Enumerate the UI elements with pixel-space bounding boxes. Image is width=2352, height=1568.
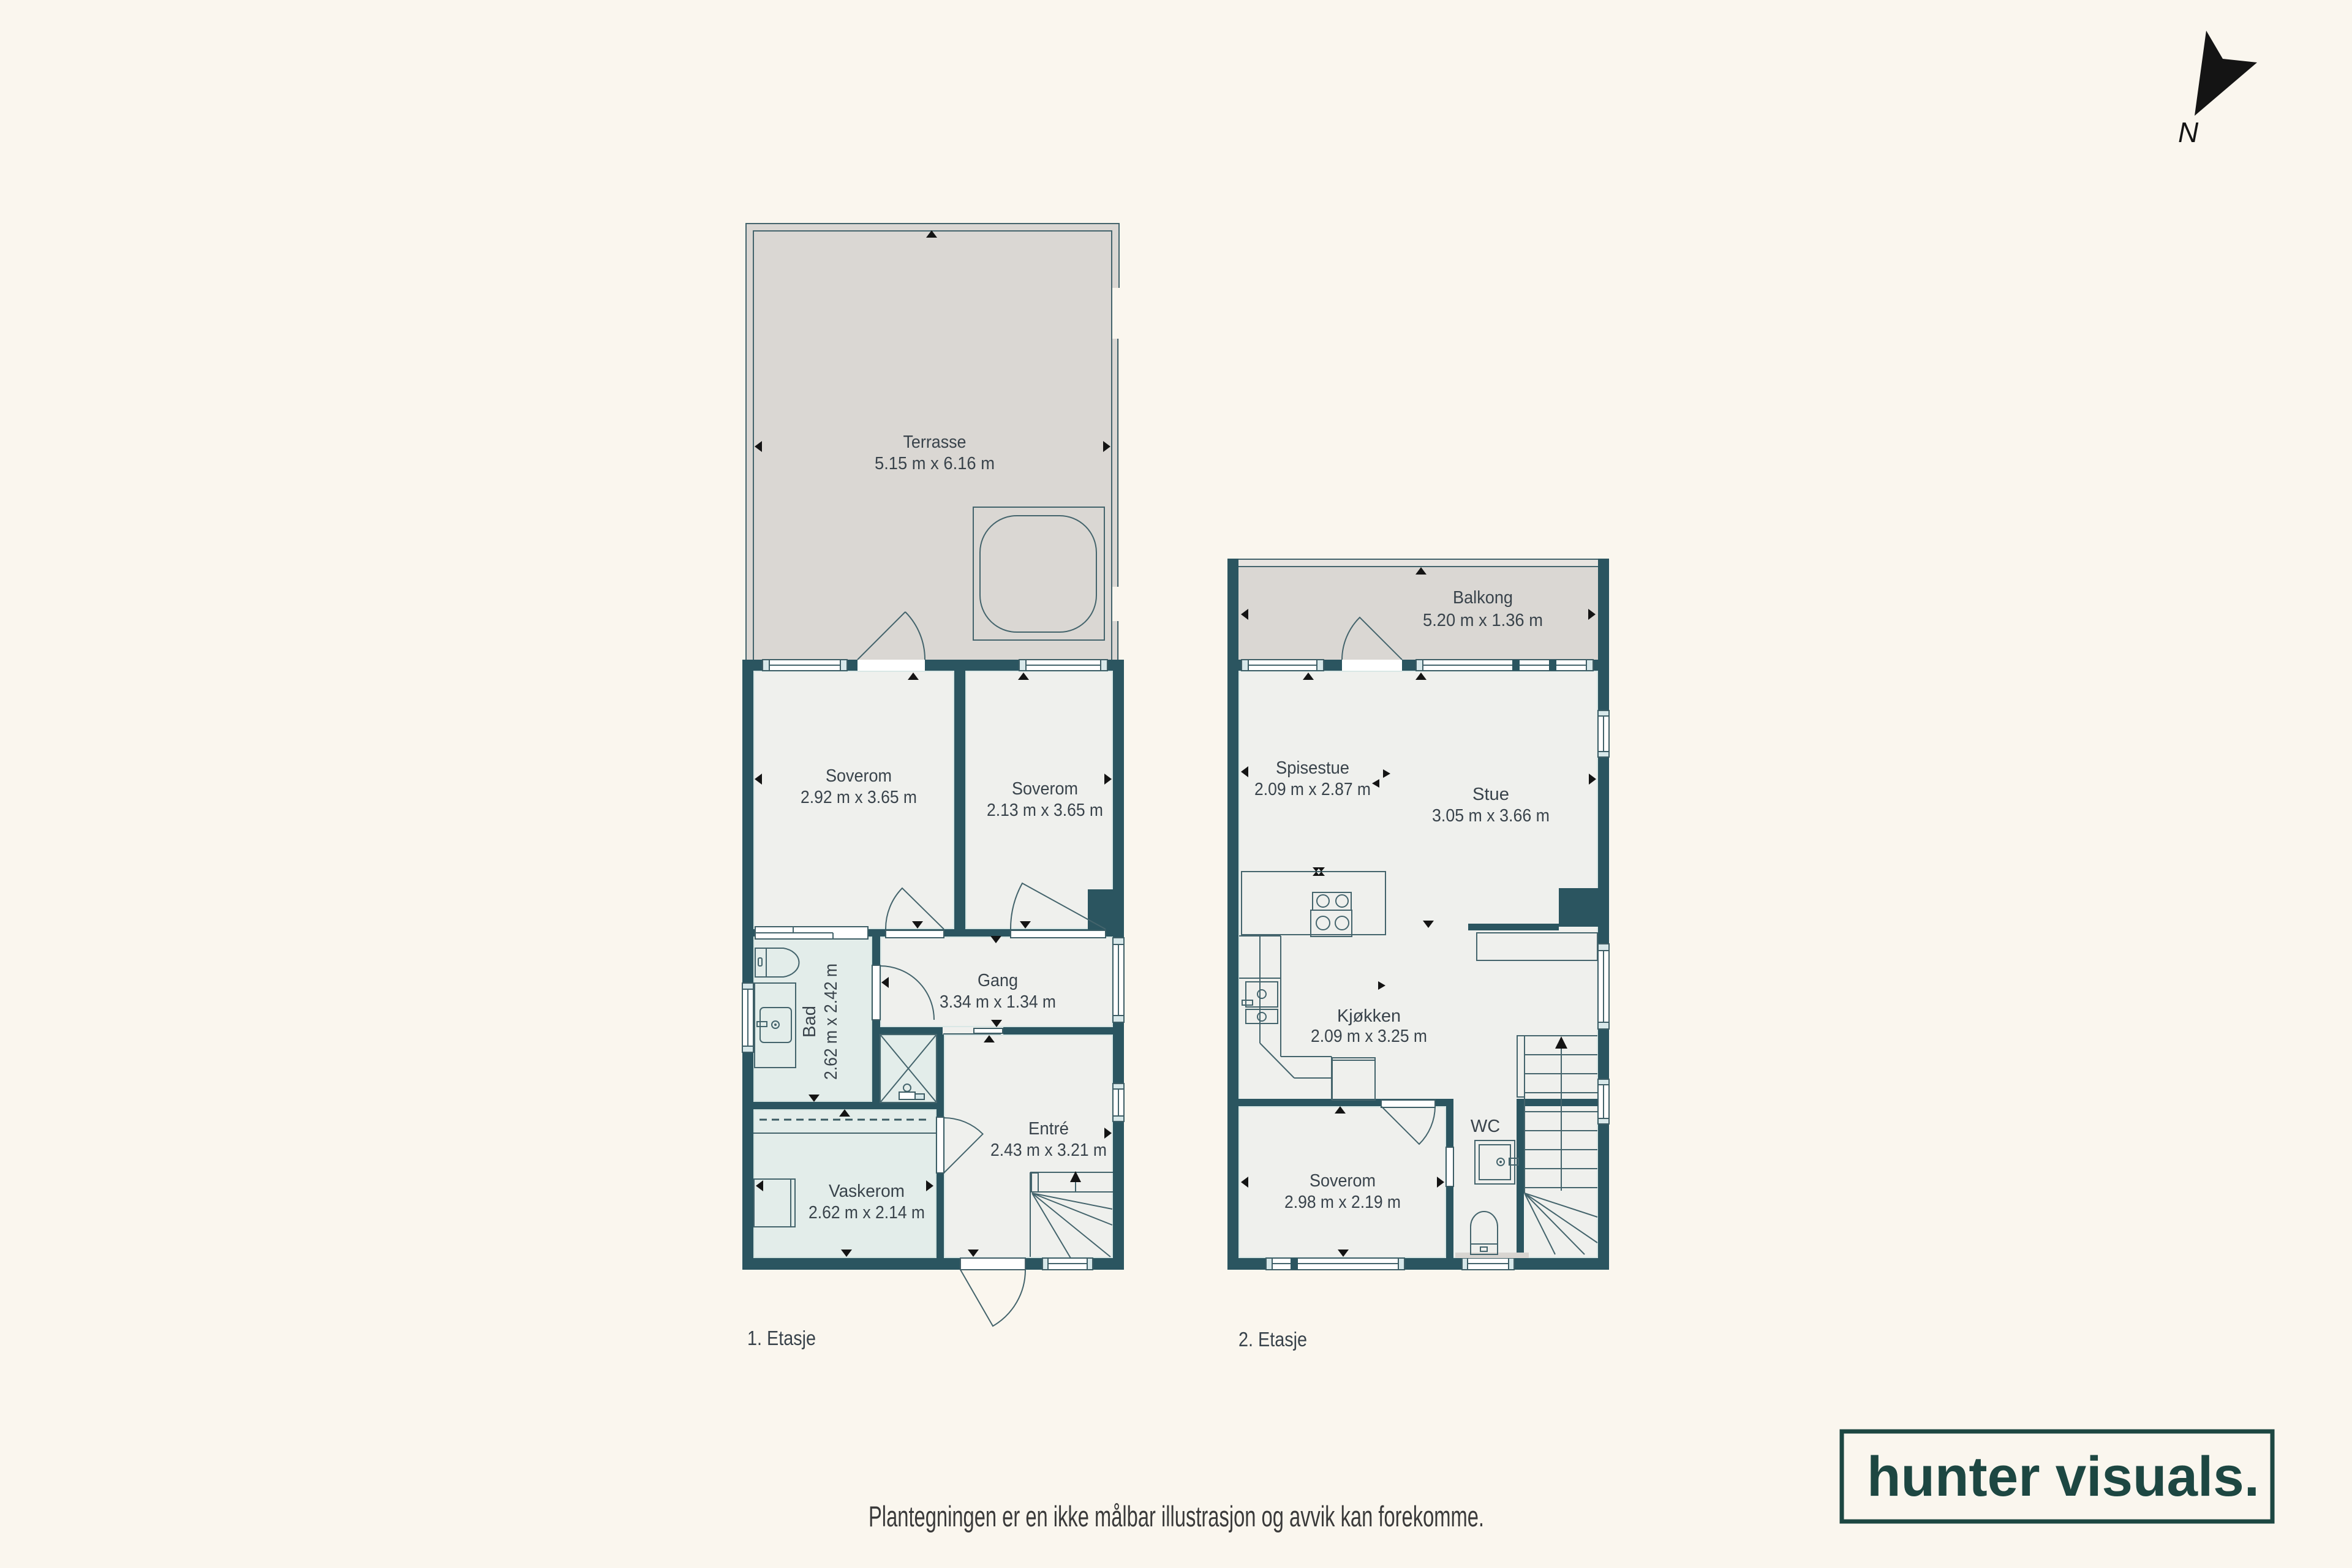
svg-text:Soverom: Soverom	[1310, 1171, 1376, 1191]
svg-text:Kjøkken: Kjøkken	[1337, 1006, 1401, 1026]
svg-text:5.15 m x 6.16 m: 5.15 m x 6.16 m	[875, 454, 995, 473]
svg-text:1. Etasje: 1. Etasje	[747, 1327, 816, 1349]
svg-text:N: N	[2178, 116, 2199, 148]
svg-text:Stue: Stue	[1472, 785, 1509, 804]
svg-text:2.62 m x 2.14 m: 2.62 m x 2.14 m	[809, 1203, 925, 1223]
svg-text:2.62 m x 2.42 m: 2.62 m x 2.42 m	[821, 963, 841, 1080]
svg-text:Balkong: Balkong	[1453, 588, 1513, 608]
svg-text:2.09 m x 2.87 m: 2.09 m x 2.87 m	[1254, 780, 1371, 799]
svg-text:Bad: Bad	[800, 1006, 820, 1038]
svg-text:Soverom: Soverom	[1012, 779, 1078, 799]
svg-text:2.98 m x 2.19 m: 2.98 m x 2.19 m	[1284, 1193, 1401, 1212]
svg-text:2.92 m x 3.65 m: 2.92 m x 3.65 m	[801, 788, 917, 807]
svg-text:Spisestue: Spisestue	[1276, 758, 1349, 778]
svg-text:Gang: Gang	[978, 971, 1018, 990]
svg-text:3.05 m x 3.66 m: 3.05 m x 3.66 m	[1432, 806, 1550, 826]
svg-text:Terrasse: Terrasse	[903, 432, 967, 452]
svg-text:Plantegningen er en ikke målba: Plantegningen er en ikke målbar illustra…	[869, 1500, 1484, 1532]
svg-text:5.20 m x 1.36 m: 5.20 m x 1.36 m	[1423, 611, 1543, 630]
svg-text:Vaskerom: Vaskerom	[829, 1182, 905, 1201]
svg-text:Entré: Entré	[1028, 1119, 1069, 1139]
svg-text:WC: WC	[1471, 1117, 1500, 1136]
svg-text:Soverom: Soverom	[826, 766, 892, 786]
svg-text:2. Etasje: 2. Etasje	[1238, 1328, 1307, 1351]
svg-text:2.13 m x 3.65 m: 2.13 m x 3.65 m	[987, 801, 1103, 820]
svg-text:3.34 m x 1.34 m: 3.34 m x 1.34 m	[940, 992, 1056, 1012]
svg-text:2.43 m x 3.21 m: 2.43 m x 3.21 m	[990, 1140, 1107, 1160]
svg-text:2.09 m x 3.25 m: 2.09 m x 3.25 m	[1311, 1027, 1427, 1046]
svg-text:hunter visuals.: hunter visuals.	[1867, 1445, 2260, 1508]
